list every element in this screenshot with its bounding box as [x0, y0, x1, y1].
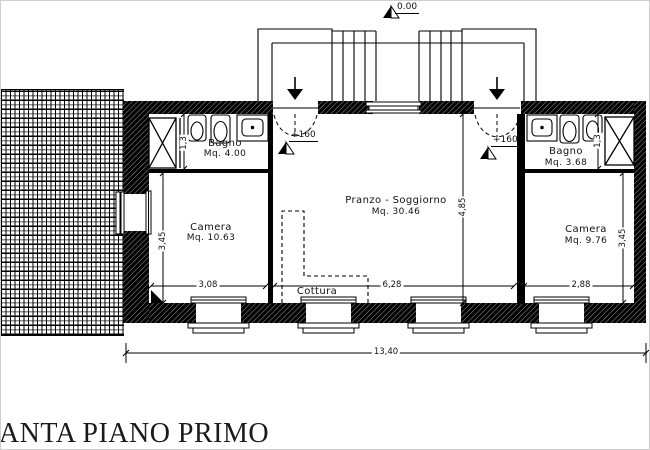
room-label-camera-left: Camera [190, 223, 232, 233]
room-area-bagno-right: Mq. 3.68 [545, 159, 587, 168]
room-area-bagno-left: Mq. 4.00 [204, 150, 246, 159]
entry-arrows [287, 77, 505, 100]
room-label-bagno-right: Bagno [549, 147, 583, 157]
dim-camera-right-width: 2,88 [570, 281, 593, 290]
room-area-camera-right: Mq. 9.76 [565, 237, 607, 246]
dim-total-width: 13,40 [372, 348, 400, 357]
elevation-entry-right-label: +160 [491, 136, 520, 147]
drawing-title: PIANTA PIANO PRIMO [0, 420, 269, 448]
dim-camera-left-depth: 3,45 [159, 231, 168, 252]
dim-camera-left-width: 3,08 [197, 281, 220, 290]
down-arrow-icon [287, 89, 303, 100]
dim-pranzo-width: 6,28 [381, 281, 404, 290]
elevation-zero-label: 0.00 [395, 3, 419, 14]
dim-camera-right-depth: 3,45 [619, 228, 628, 249]
linework-layer [1, 1, 650, 450]
room-label-bagno-left: Bagno [208, 139, 242, 149]
room-label-cottura: Cottura [297, 287, 337, 297]
floor-plan-drawing: 0.00 +160 +160 Bagno Mq. 4.00 Camera Mq.… [0, 0, 650, 450]
room-label-camera-right: Camera [565, 225, 607, 235]
room-area-camera-left: Mq. 10.63 [187, 234, 236, 243]
dim-pranzo-depth: 4,85 [459, 197, 468, 218]
room-area-pranzo-soggiorno: Mq. 30.46 [372, 208, 421, 217]
elevation-entry-left-label: +160 [289, 131, 318, 142]
down-arrow-icon [489, 89, 505, 100]
dim-bagno-left-depth: 1,3 [180, 135, 189, 151]
corner-marker [151, 290, 164, 303]
dim-bagno-right-depth: 1,3 [594, 133, 603, 149]
room-label-pranzo-soggiorno: Pranzo - Soggiorno [345, 196, 446, 206]
bathroom-fixtures [188, 115, 602, 143]
